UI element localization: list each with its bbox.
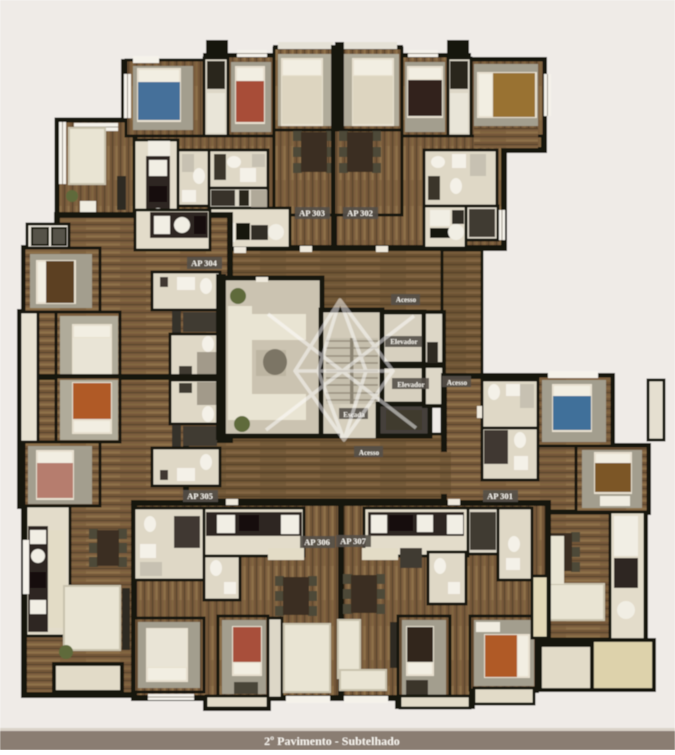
svg-text:AP 304: AP 304 bbox=[191, 258, 217, 268]
svg-text:Acesso: Acesso bbox=[359, 449, 380, 457]
svg-text:Elevador: Elevador bbox=[390, 338, 417, 346]
svg-text:Acesso: Acesso bbox=[396, 296, 417, 304]
svg-text:AP 306: AP 306 bbox=[304, 537, 330, 547]
svg-text:Elevador: Elevador bbox=[397, 381, 424, 389]
svg-text:AP 302: AP 302 bbox=[347, 208, 373, 218]
svg-text:AP 307: AP 307 bbox=[340, 536, 366, 546]
svg-text:AP 301: AP 301 bbox=[487, 491, 513, 501]
svg-text:AP 305: AP 305 bbox=[187, 491, 213, 501]
svg-text:2º Pavimento - Subtelhado: 2º Pavimento - Subtelhado bbox=[264, 734, 400, 748]
svg-text:Acesso: Acesso bbox=[447, 379, 468, 387]
svg-text:AP 303: AP 303 bbox=[299, 208, 325, 218]
